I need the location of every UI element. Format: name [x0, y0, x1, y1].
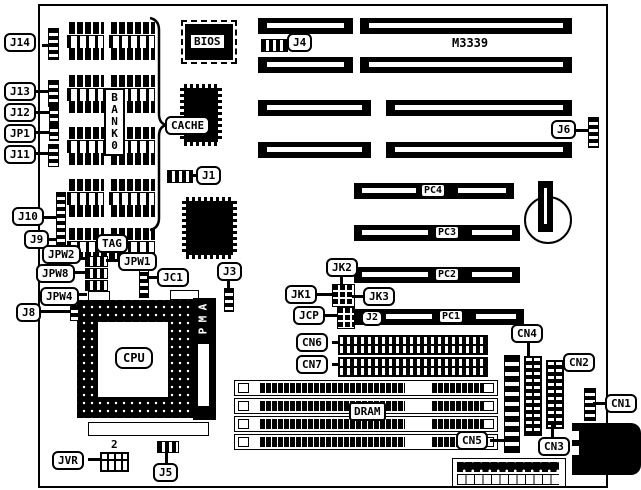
dip-socket-row: [67, 179, 104, 191]
jpw-jumper-row: [85, 268, 108, 279]
j4-label: J4: [287, 33, 312, 52]
jvr-jumper-block: [100, 452, 129, 472]
jpw-jumper-row: [85, 280, 108, 291]
j11-connector: [48, 144, 59, 167]
leader-line: [340, 277, 343, 285]
dip-socket-row: [67, 140, 104, 154]
leader-line: [34, 152, 48, 155]
leader-line: [332, 341, 339, 344]
cache-label: CACHE: [165, 116, 210, 135]
pc2-slot-label: PC2: [434, 267, 460, 282]
j11-label: J11: [4, 145, 36, 164]
cn4-label: CN4: [511, 324, 543, 343]
isa-slot: [386, 100, 572, 116]
dip-socket-row: [67, 22, 104, 34]
bottom-pin-header-sockets: [457, 474, 559, 485]
j8-label: J8: [16, 303, 41, 322]
dip-socket-row: [67, 101, 104, 113]
keyboard-connector: [572, 423, 641, 475]
dram-label: DRAM: [349, 402, 386, 421]
dip-socket-row: [67, 153, 104, 165]
leader-line: [575, 129, 589, 132]
leader-line: [332, 363, 339, 366]
isa-slot: [258, 100, 371, 116]
bios-label: BIOS: [190, 34, 225, 49]
leader-line: [34, 90, 48, 93]
board-model: M3339: [452, 36, 488, 50]
cn1-label: CN1: [605, 394, 637, 413]
j6-connector: [588, 117, 599, 148]
isa-slot: [360, 57, 572, 73]
cn2-label: CN2: [563, 353, 595, 372]
jpw4-label: JPW4: [40, 287, 79, 306]
bottom-pin-header: [452, 458, 566, 487]
dip-socket-row: [67, 205, 104, 217]
jpw1-label: JPW1: [118, 252, 157, 271]
cache-controller-chip: [180, 84, 222, 146]
leader-line: [34, 131, 49, 134]
isa-slot: [258, 57, 353, 73]
cpu-label: CPU: [115, 347, 153, 369]
cn6-label: CN6: [296, 333, 328, 352]
j1-label: J1: [196, 166, 221, 185]
pc4-slot-label: PC4: [420, 183, 446, 198]
cn7-connector: [338, 357, 488, 377]
isa-slot: [258, 142, 371, 158]
j10-label: J10: [12, 207, 44, 226]
j14-label: J14: [4, 33, 36, 52]
leader-line: [106, 259, 118, 262]
j13-label: J13: [4, 82, 36, 101]
jk2-label: JK2: [326, 258, 358, 277]
leader-line: [48, 238, 56, 241]
cn4-connector: [524, 356, 542, 436]
j6-label: J6: [551, 120, 576, 139]
jp1-label: JP1: [4, 124, 36, 143]
zif-lever: [198, 344, 209, 406]
dip-socket-row: [67, 48, 104, 60]
chipset-chip: [182, 197, 237, 259]
amp-label: AMP: [194, 301, 213, 337]
bank0-label: BANK0: [104, 88, 125, 156]
leader-line: [165, 450, 168, 464]
j5-label: J5: [153, 463, 178, 482]
cn5-connector: [504, 355, 520, 453]
jp1-connector: [49, 124, 59, 141]
leader-line: [317, 293, 333, 296]
jpw8-label: JPW8: [36, 264, 75, 283]
j9-j10-connector: [56, 192, 66, 246]
jc1-label: JC1: [157, 268, 189, 287]
cn3-label: CN3: [538, 437, 570, 456]
jpw-jumper-row: [85, 256, 108, 267]
socket-tab: [88, 291, 110, 301]
jvr-pin-number: 2: [111, 438, 118, 451]
pc1-slot-label: PC1: [438, 309, 464, 324]
pc4-slot: PC4: [354, 183, 514, 199]
j2-label: J2: [361, 310, 383, 326]
leader-line: [34, 111, 49, 114]
bottom-pin-header-pins: [457, 462, 559, 472]
cn7-label: CN7: [296, 355, 328, 374]
dip-socket-row: [67, 75, 104, 87]
leader-line: [551, 424, 554, 438]
j3-connector: [224, 288, 234, 312]
pc2-slot: PC2: [354, 267, 520, 283]
isa-slot: [360, 18, 572, 34]
leader-line: [490, 439, 505, 442]
j8-connector: [70, 305, 79, 321]
isa-slot: [258, 18, 353, 34]
dip-socket-row: [67, 127, 104, 139]
leader-line: [324, 314, 338, 317]
tag-label: TAG: [96, 234, 128, 253]
bios-chip: BIOS: [181, 20, 237, 64]
j12-label: J12: [4, 103, 36, 122]
leader-line: [88, 458, 101, 461]
jcp-connector: [337, 307, 355, 329]
leader-line: [42, 44, 50, 47]
j3-label: J3: [217, 262, 242, 281]
battery-clip-slot: [544, 188, 547, 224]
socket-flange: [88, 422, 209, 436]
pc3-slot-label: PC3: [434, 225, 460, 240]
cn5-label: CN5: [456, 431, 488, 450]
jk1-label: JK1: [285, 285, 317, 304]
jcp-label: JCP: [293, 306, 325, 325]
jpw2-label: JPW2: [42, 245, 81, 264]
jk3-label: JK3: [363, 287, 395, 306]
dip-socket-row: [67, 88, 104, 102]
j13-connector: [48, 80, 59, 107]
pc3-slot: PC3: [354, 225, 520, 241]
leader-line: [227, 281, 230, 289]
j12-connector: [49, 106, 59, 124]
motherboard-diagram: J14 J13 J12 JP1 J11 J10 J9 BANK0 TAG BIO…: [0, 0, 641, 490]
dip-socket-row: [67, 192, 104, 206]
leader-line: [40, 310, 70, 313]
j5-connector: [157, 441, 179, 453]
leader-line: [78, 293, 87, 296]
jvr-label: JVR: [52, 451, 84, 470]
dip-socket-row: [67, 35, 104, 49]
dram-simm-slot: [234, 380, 498, 396]
cn6-connector: [338, 335, 488, 355]
leader-line: [147, 276, 157, 279]
isa-slot: [386, 142, 572, 158]
leader-line: [527, 343, 530, 357]
cn3-connector: [546, 395, 564, 429]
